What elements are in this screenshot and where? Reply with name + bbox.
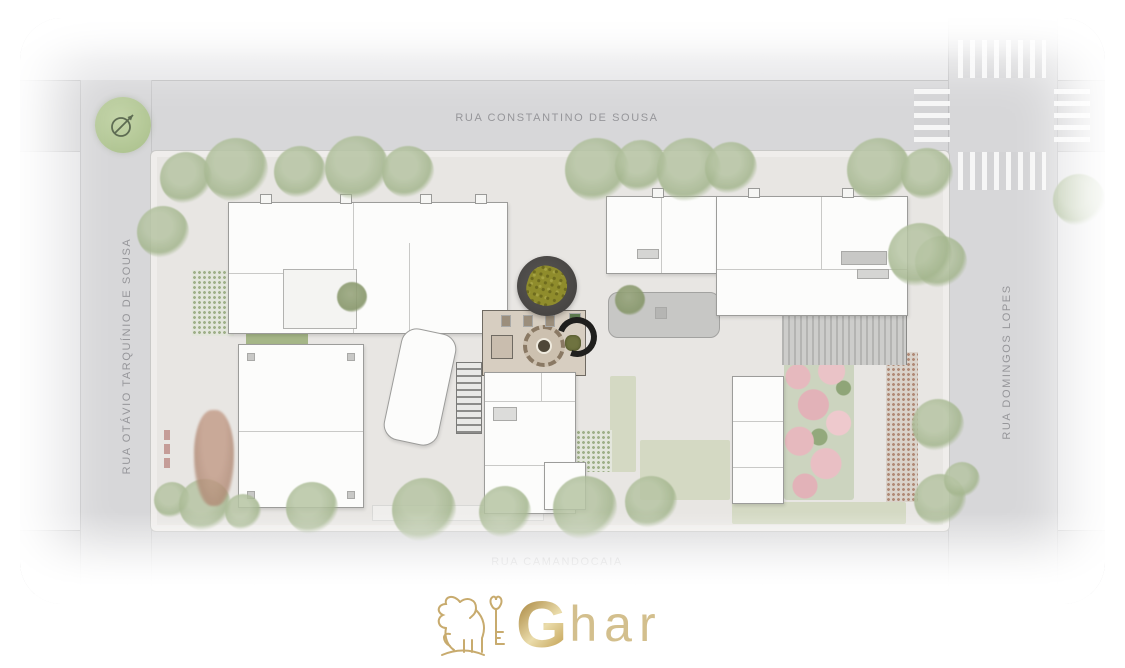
building-east-wing [732,376,784,504]
building-northeast-right [716,196,908,316]
tree-icon [888,223,952,287]
louvered-roof-terrace [782,312,907,365]
tree-icon [325,136,389,200]
tree-icon [901,148,953,200]
tree-icon [615,285,645,315]
brand-initial: G [516,591,567,657]
site-plan-map: RUA CONSTANTINO DE SOUSA RUA OTÁVIO TARQ… [20,18,1105,604]
site-plan-image: RUA CONSTANTINO DE SOUSA RUA OTÁVIO TARQ… [0,0,1125,668]
stair-strip [456,362,482,434]
tree-icon [392,478,456,542]
building-northwest [228,202,508,334]
lion-with-key-icon [430,588,514,660]
brand-logo: G har [430,584,730,664]
tree-icon [286,482,338,534]
street-left [80,80,152,592]
tree-icon [1053,174,1105,226]
bench-dash-2 [164,444,170,454]
tree-icon [204,138,268,202]
lawn-pale-1 [610,376,636,472]
tree-icon [225,494,261,530]
crosswalk-west [914,88,950,142]
crosswalk-south [958,152,1046,190]
tree-icon [274,146,326,198]
street-label-left: RUA OTÁVIO TARQUÍNIO DE SOUSA [121,238,133,475]
tree-icon [944,462,980,498]
tree-icon [382,146,434,198]
street-label-right: RUA DOMINGOS LOPES [1001,284,1013,439]
bench-dash-3 [164,458,170,468]
north-arrow-icon [95,97,151,153]
tree-icon [705,142,757,194]
tree-icon [479,486,531,538]
building-northeast-left [606,196,718,274]
brand-name-rest: har [569,599,662,649]
bench-dash-1 [164,430,170,440]
tree-icon [337,282,367,312]
top-fade [20,18,1105,60]
pink-flower-garden [784,360,854,500]
street-label-bottom: RUA CAMANDOCAIA [491,556,623,568]
tree-icon [625,476,677,528]
tree-icon [553,476,617,540]
crosswalk-north [958,40,1046,78]
autumn-tree-icon [194,410,234,506]
lawn-pale-3 [732,502,906,524]
tree-icon [912,399,964,451]
street-label-top: RUA CONSTANTINO DE SOUSA [455,112,658,124]
tree-icon [137,206,189,258]
crosswalk-east [1054,88,1090,142]
